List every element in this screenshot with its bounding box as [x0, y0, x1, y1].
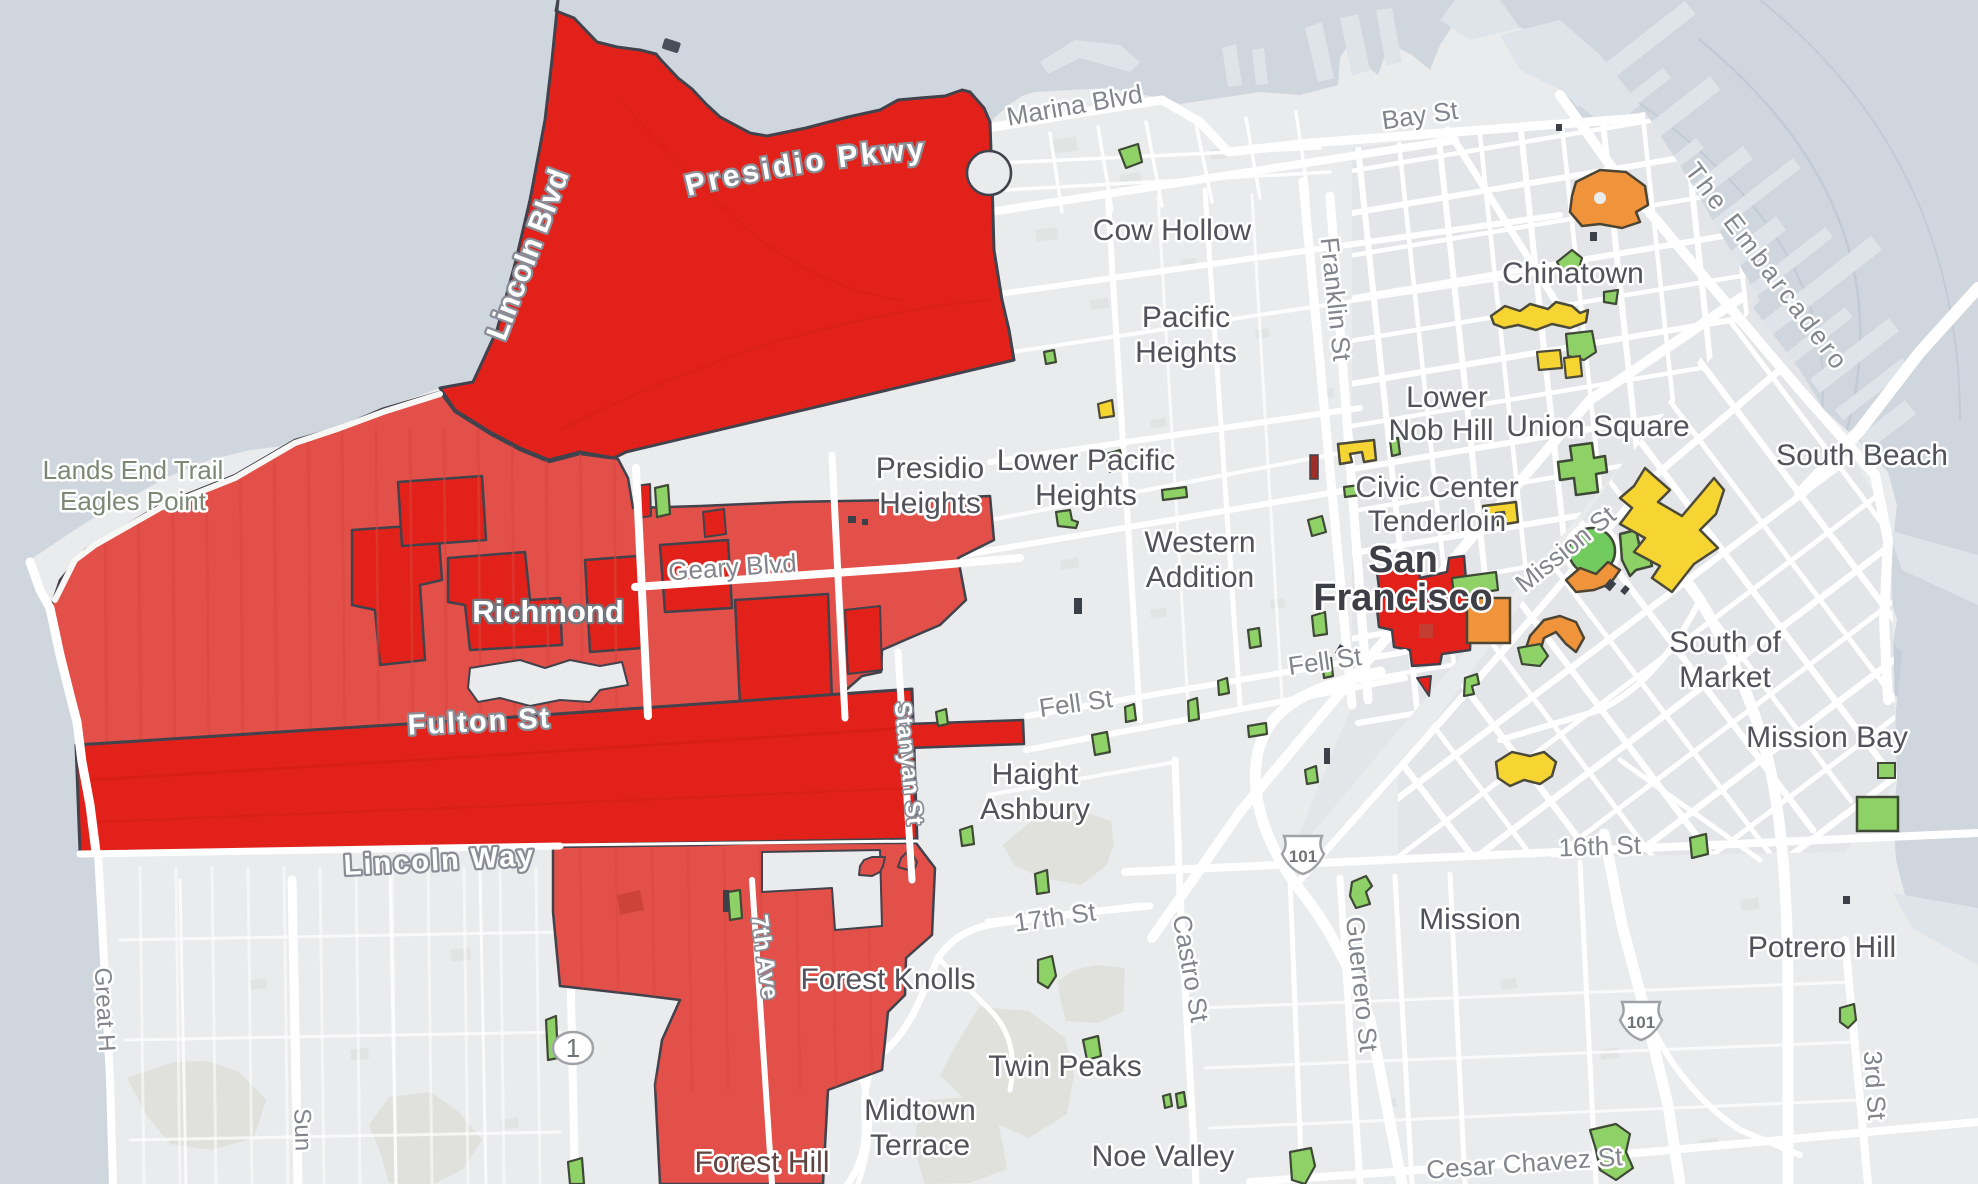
- svg-text:Pacific: Pacific: [1142, 301, 1230, 334]
- svg-text:Ashbury: Ashbury: [980, 793, 1090, 826]
- svg-text:16th St: 16th St: [1558, 830, 1642, 863]
- svg-text:Haight: Haight: [992, 758, 1079, 791]
- svg-text:Noe Valley: Noe Valley: [1092, 1140, 1235, 1173]
- svg-text:Great H: Great H: [89, 967, 120, 1052]
- svg-text:Nob Hill: Nob Hill: [1388, 414, 1493, 447]
- svg-text:Potrero Hill: Potrero Hill: [1748, 931, 1896, 964]
- svg-text:Francisco: Francisco: [1313, 577, 1493, 619]
- svg-text:Civic Center: Civic Center: [1355, 471, 1518, 504]
- svg-text:Forest Knolls: Forest Knolls: [800, 963, 975, 996]
- svg-text:San: San: [1368, 539, 1438, 581]
- svg-text:Mission Bay: Mission Bay: [1746, 721, 1908, 754]
- svg-text:Sun: Sun: [288, 1108, 316, 1152]
- svg-text:South Beach: South Beach: [1776, 439, 1948, 472]
- svg-text:Cow Hollow: Cow Hollow: [1093, 214, 1252, 247]
- svg-text:Western: Western: [1144, 526, 1255, 559]
- svg-text:101: 101: [1289, 847, 1317, 866]
- svg-text:Richmond: Richmond: [472, 594, 624, 629]
- svg-text:1: 1: [566, 1033, 580, 1063]
- svg-text:Market: Market: [1679, 661, 1771, 694]
- svg-text:Forest Hill: Forest Hill: [694, 1146, 829, 1179]
- svg-text:Lands End Trail: Lands End Trail: [43, 455, 224, 485]
- svg-text:3rd St: 3rd St: [1858, 1050, 1893, 1122]
- svg-text:Twin Peaks: Twin Peaks: [988, 1050, 1141, 1083]
- svg-text:Midtown: Midtown: [864, 1094, 976, 1127]
- svg-text:Heights: Heights: [1035, 479, 1137, 512]
- svg-text:101: 101: [1627, 1013, 1655, 1032]
- svg-text:Union Square: Union Square: [1506, 410, 1689, 443]
- svg-text:Tenderloin: Tenderloin: [1368, 505, 1506, 538]
- svg-text:South of: South of: [1669, 626, 1781, 659]
- svg-text:Heights: Heights: [879, 487, 981, 520]
- svg-text:Heights: Heights: [1135, 336, 1237, 369]
- svg-text:Mission: Mission: [1419, 903, 1521, 936]
- svg-text:Lower: Lower: [1406, 381, 1488, 414]
- svg-text:Chinatown: Chinatown: [1502, 257, 1644, 290]
- svg-text:Terrace: Terrace: [870, 1129, 970, 1162]
- svg-text:Addition: Addition: [1146, 561, 1254, 594]
- svg-text:Lower Pacific: Lower Pacific: [997, 444, 1175, 477]
- svg-text:Presidio: Presidio: [876, 452, 984, 485]
- svg-text:Eagles Point: Eagles Point: [60, 486, 207, 516]
